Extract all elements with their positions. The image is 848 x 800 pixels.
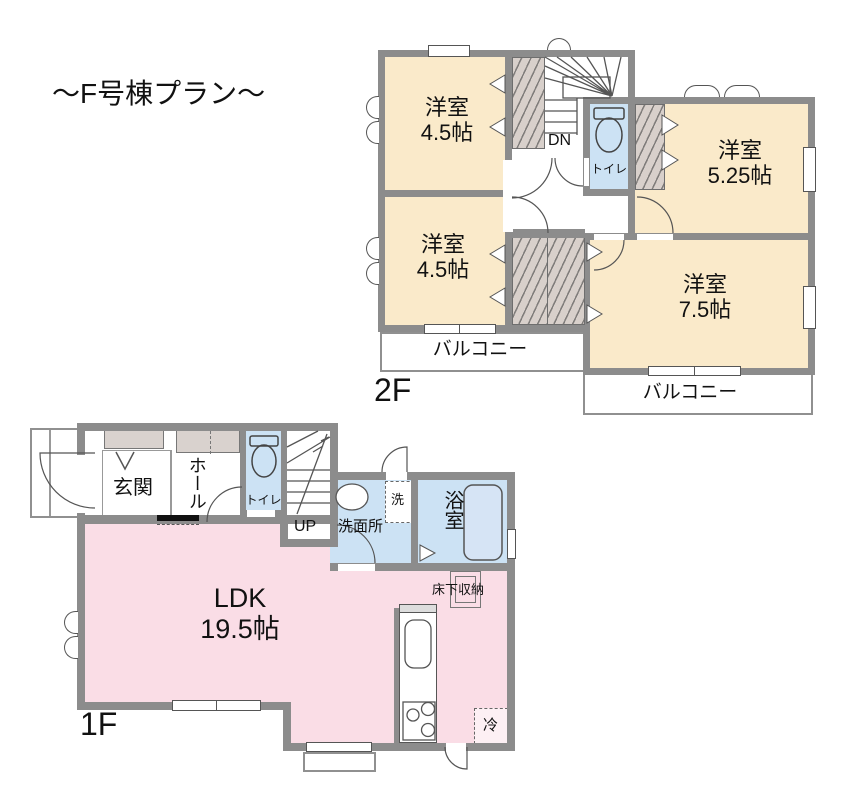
window-1f-bottom-right (306, 742, 372, 752)
wall-1f-stair-bottom (280, 539, 338, 547)
entrance-hall-divider (170, 450, 172, 516)
bathroom-floor (411, 472, 515, 571)
wall-1f-bath-divider (411, 472, 418, 571)
closet-2f-top (512, 57, 545, 149)
window-tick-c (216, 700, 217, 711)
label-2f-bedroom-right-lower: 洋室 7.5帖 (645, 272, 765, 323)
wall-1f-right (507, 472, 515, 751)
door-gap-2f-75 (594, 234, 624, 240)
door-gap-washroom (338, 564, 375, 571)
door-gap-2f-525 (637, 234, 673, 240)
window-2f-balcony-left (424, 324, 496, 334)
ldk-sliding-door (157, 515, 199, 521)
ldk-sliding-door-track (157, 524, 199, 525)
door-gap-2f-b (503, 198, 513, 232)
window-2f-top (428, 45, 470, 57)
label-bathroom: 浴室 (440, 490, 463, 530)
label-washer: 洗 (391, 493, 404, 508)
label-hall: ホール (186, 456, 207, 510)
label-balcony-left: バルコニー (410, 339, 550, 361)
label-entrance: 玄関 (113, 477, 153, 500)
hall-cabinet (176, 430, 240, 453)
label-washroom: 洗面所 (338, 518, 383, 535)
entrance-porch (30, 428, 80, 518)
label-1f-toilet: トイレ (240, 494, 287, 508)
window-tick-a (459, 324, 460, 334)
hall-cabinet-divider (210, 431, 211, 454)
window-2f-stair-top (547, 38, 571, 50)
door-gap-entrance (77, 455, 85, 513)
window-2f-left-b (366, 121, 379, 144)
wall-1f-stair-right (330, 423, 338, 547)
window-2f-75-right (803, 286, 816, 329)
label-2f-bedroom-right-upper: 洋室 5.25帖 (680, 138, 800, 189)
wall-2f-closet-top (512, 229, 585, 238)
label-floor2: 2F (374, 372, 411, 409)
window-2f-525-top-a (684, 85, 720, 97)
label-balcony-right: バルコニー (620, 382, 760, 404)
label-2f-bedroom-top-left: 洋室 4.5帖 (392, 95, 502, 146)
closet-2f-bottom-left (512, 237, 548, 325)
label-2f-dn: DN (548, 132, 571, 150)
window-2f-525-top-b (724, 85, 760, 97)
plan-title: 〜F号棟プラン〜 (52, 78, 265, 110)
wall-1f-top (77, 423, 338, 431)
door-gap-kitchen-back (446, 743, 466, 751)
window-2f-left-a (366, 96, 379, 119)
porch-divider (49, 430, 51, 516)
wall-1f-kitchen-halfwall (394, 608, 399, 743)
closet-2f-right-of-toilet (635, 104, 665, 190)
door-gap-2f-a (503, 160, 513, 198)
label-1f-up: UP (294, 518, 316, 536)
back-deck (303, 752, 376, 772)
floor-plan: 〜F号棟プラン〜 洋室 4.5帖 洋室 4.5帖 洋室 5.25帖 (0, 0, 848, 800)
wall-1f-wash-top (330, 472, 515, 480)
closet-2f-bottom-right (547, 237, 585, 325)
kitchen-counter (399, 612, 437, 743)
window-2f-left-d (366, 262, 379, 285)
window-2f-left-c (366, 237, 379, 260)
window-1f-bath (507, 529, 516, 559)
label-ldk: LDK 19.5帖 (160, 583, 320, 645)
window-1f-left-b (64, 636, 78, 659)
label-2f-toilet: トイレ (584, 163, 634, 177)
window-tick-b (694, 366, 695, 376)
door-arc-wash-exterior (382, 447, 407, 472)
label-fridge: 冷 (483, 717, 498, 734)
room-2f-toilet (583, 97, 635, 196)
door-gap-wash-exterior (386, 472, 407, 480)
window-2f-525-right (803, 147, 816, 192)
label-2f-bedroom-bottom-left: 洋室 4.5帖 (388, 232, 498, 283)
window-1f-left-a (64, 611, 78, 634)
label-floor1: 1F (80, 706, 117, 743)
door-gap-1f-toilet (247, 510, 275, 517)
shoe-cabinet (104, 430, 164, 449)
label-floor-storage: 床下収納 (432, 583, 484, 598)
